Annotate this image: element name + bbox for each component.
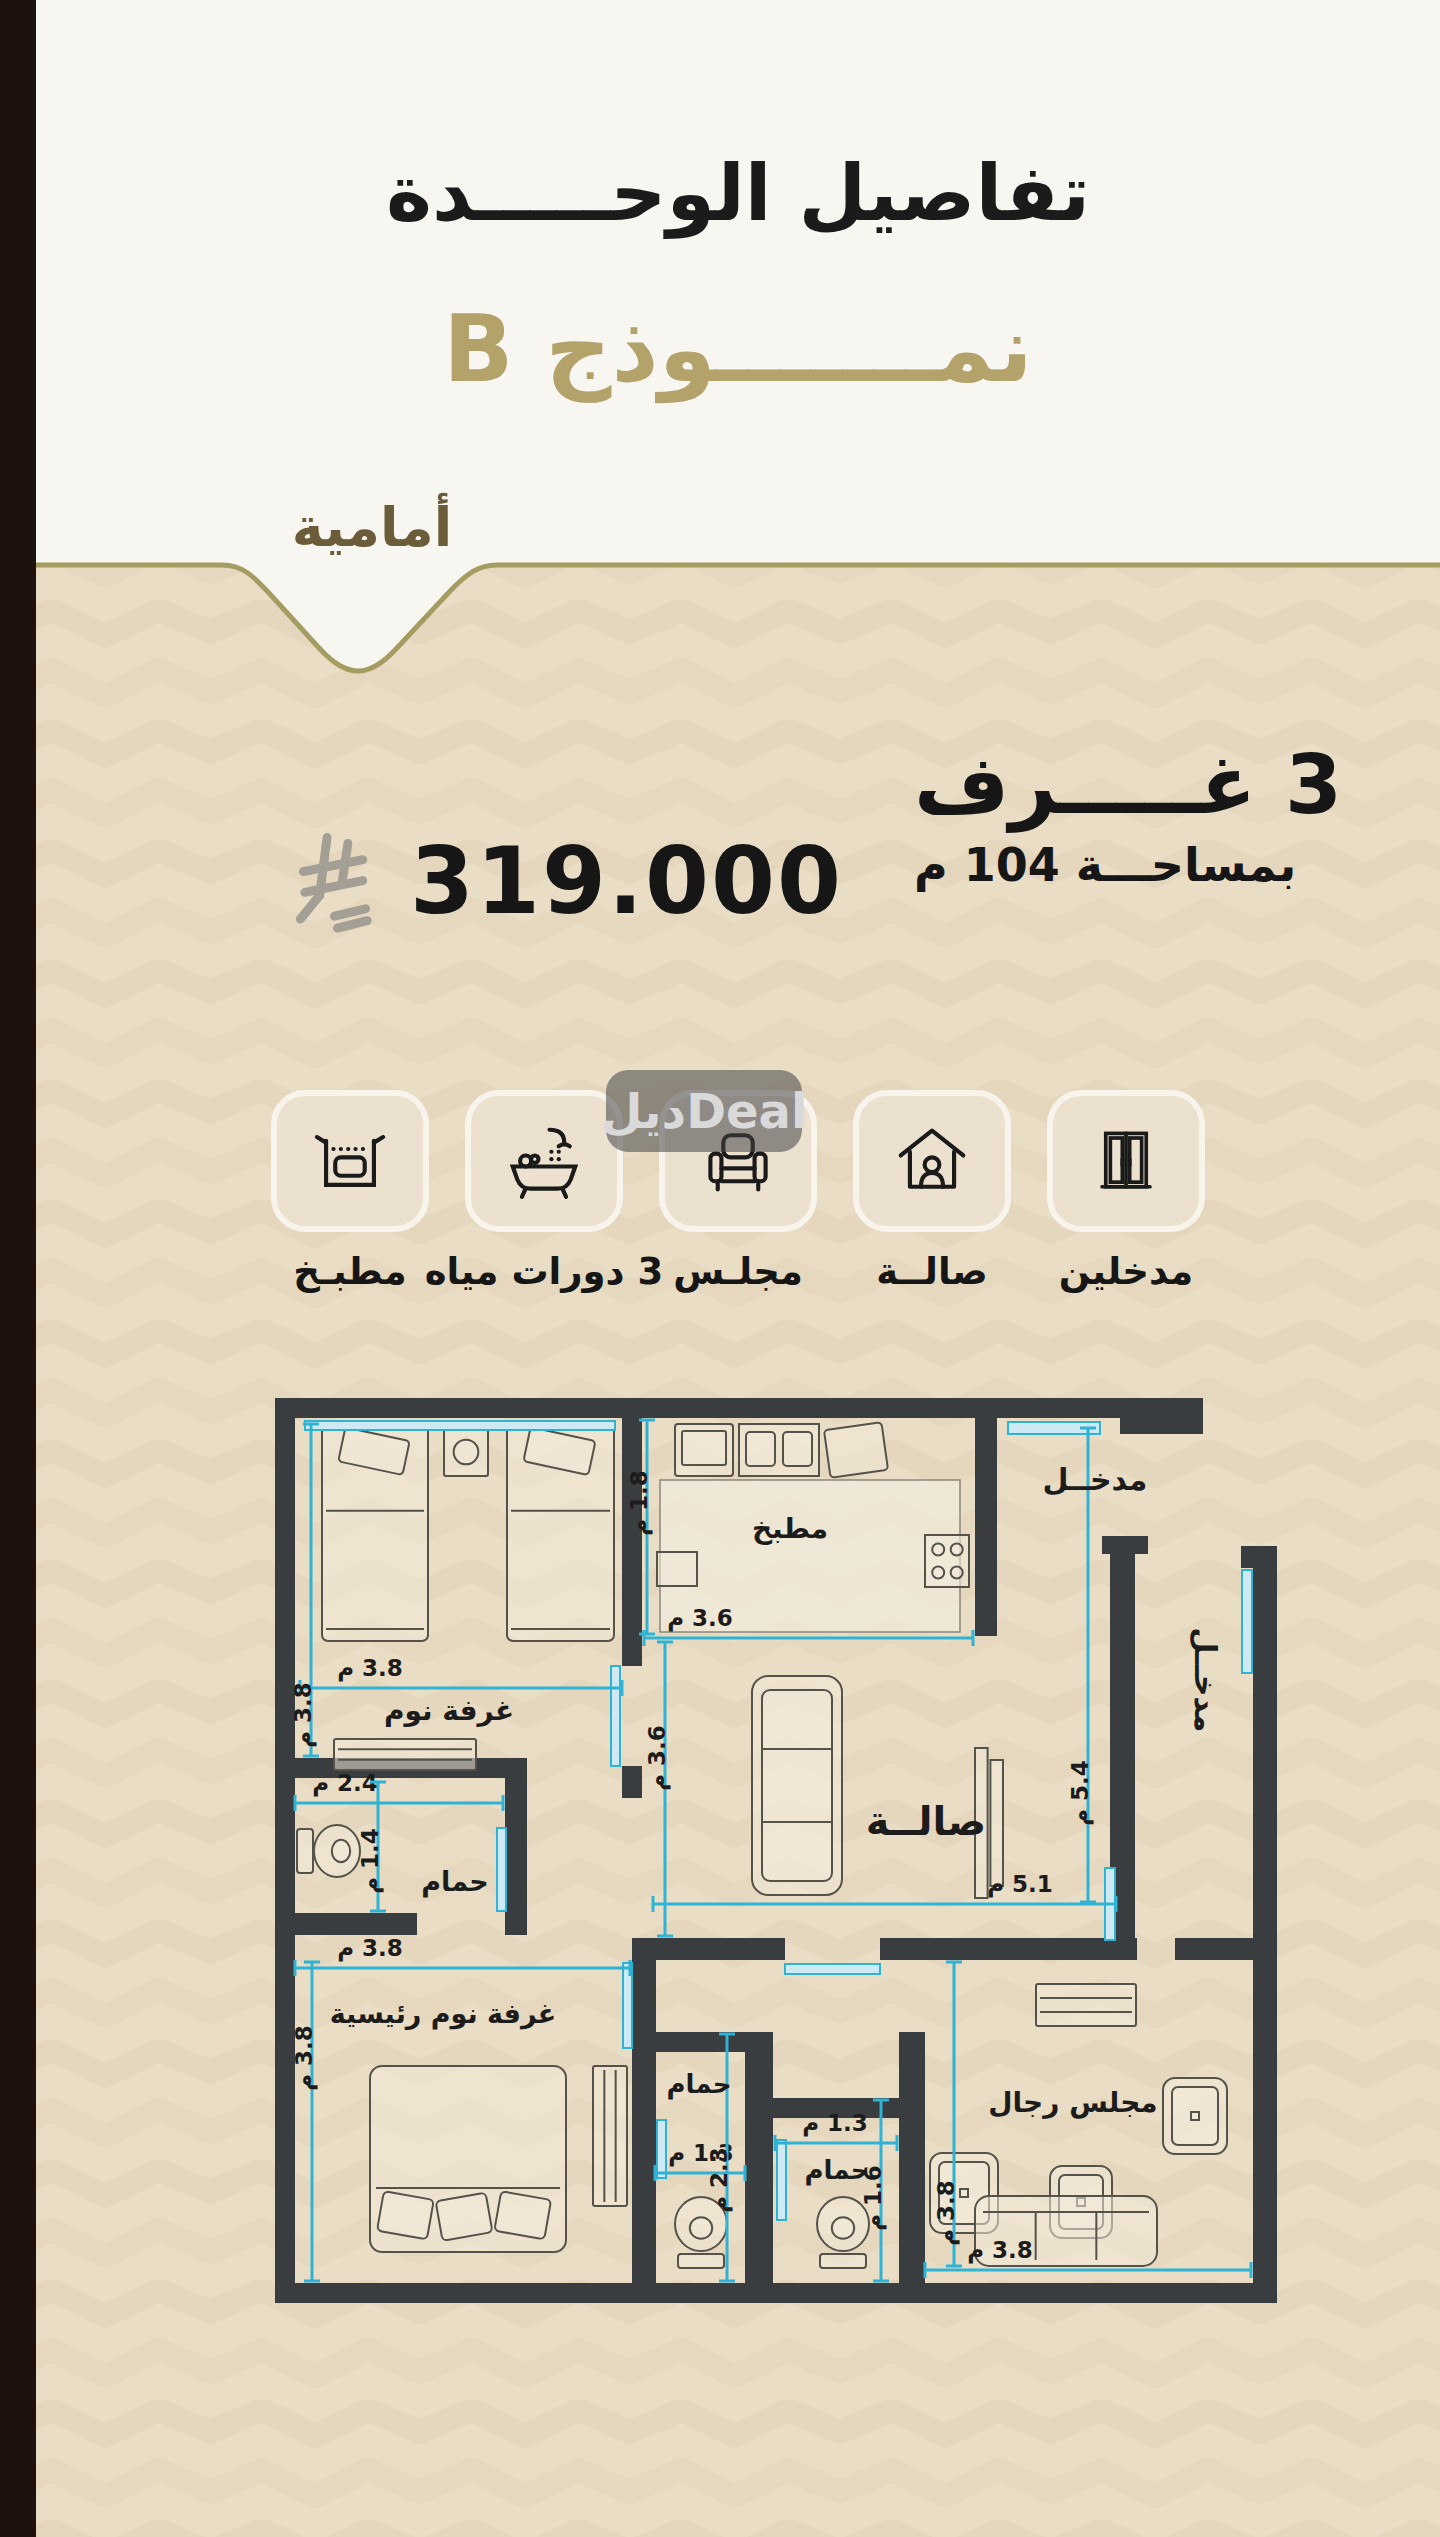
- svg-text:مجلس رجال: مجلس رجال: [988, 2086, 1157, 2119]
- svg-text:3.6 م: 3.6 م: [667, 1605, 733, 1632]
- svg-text:3.6 م: 3.6 م: [644, 1725, 671, 1791]
- svg-text:غرفة نوم: غرفة نوم: [384, 1694, 514, 1727]
- flyer-page: تفاصيل الوحـــــدة نمـــــــوذج B أمامية…: [0, 0, 1440, 2537]
- svg-text:3.8 م: 3.8 م: [337, 1935, 403, 1962]
- double-door-icon: [1080, 1115, 1172, 1207]
- specs-block: 3 غـــــرف بمساحـــة 104 م: [914, 742, 1342, 892]
- feature-label: مطبـخ: [293, 1250, 406, 1293]
- svg-text:5.4 م: 5.4 م: [1067, 1760, 1094, 1826]
- svg-text:مدخــل: مدخــل: [1043, 1462, 1148, 1497]
- feature-card: [465, 1090, 623, 1232]
- price-block: 319.000: [288, 828, 843, 935]
- svg-text:1.3 م: 1.3 م: [802, 2110, 868, 2137]
- side-accent-bar: [0, 0, 36, 2537]
- floor-plan-svg: 3.8 م3.8 م1.8 م3.6 م3.6 م5.1 م5.4 م2.4 م…: [275, 1398, 1285, 2308]
- svg-text:1.4 م: 1.4 م: [357, 1828, 384, 1894]
- page-title: تفاصيل الوحـــــدة: [36, 148, 1440, 238]
- svg-text:مدخــل: مدخــل: [1188, 1628, 1223, 1733]
- house-person-icon: [886, 1115, 978, 1207]
- svg-text:3.8 م: 3.8 م: [967, 2237, 1033, 2264]
- svg-text:1.8 م: 1.8 م: [626, 1470, 653, 1536]
- price-value: 319.000: [410, 828, 843, 935]
- model-title: نمـــــــوذج B: [36, 296, 1440, 403]
- feature-card: [271, 1090, 429, 1232]
- feature-hall: صالــة: [853, 1090, 1011, 1293]
- feature-label: 3 دورات مياه: [425, 1250, 663, 1293]
- bathtub-shower-icon: [498, 1115, 590, 1207]
- unit-area: بمساحـــة 104 م: [914, 838, 1342, 892]
- floor-plan: 3.8 م3.8 م1.8 م3.6 م3.6 م5.1 م5.4 م2.4 م…: [275, 1398, 1285, 2308]
- feature-entrances: مدخلين: [1047, 1090, 1205, 1293]
- feature-label: مدخلين: [1059, 1250, 1193, 1293]
- feature-kitchen: مطبـخ: [271, 1090, 429, 1293]
- svg-text:5.1 م: 5.1 م: [987, 1871, 1053, 1898]
- svg-text:حمام: حمام: [805, 2155, 870, 2186]
- svg-text:صالــة: صالــة: [866, 1798, 986, 1844]
- watermark-badge: ديلDeal: [606, 1070, 802, 1152]
- svg-text:حمام: حمام: [667, 2069, 732, 2100]
- svg-text:غرفة نوم رئيسية: غرفة نوم رئيسية: [330, 1998, 557, 2030]
- feature-label: مجلـس: [673, 1250, 803, 1293]
- saudi-riyal-icon: [288, 830, 384, 934]
- feature-card: [1047, 1090, 1205, 1232]
- orientation-badge: أمامية: [252, 496, 492, 559]
- svg-text:3.8 م: 3.8 م: [291, 2025, 318, 2091]
- svg-text:2.4 م: 2.4 م: [312, 1770, 378, 1797]
- svg-text:مطبخ: مطبخ: [752, 1512, 828, 1545]
- svg-text:حمام: حمام: [421, 1866, 489, 1898]
- feature-card: [853, 1090, 1011, 1232]
- feature-bathrooms: 3 دورات مياه: [465, 1090, 623, 1293]
- rooms-count: 3 غـــــرف: [914, 742, 1342, 828]
- svg-text:3.8 م: 3.8 م: [337, 1655, 403, 1682]
- feature-label: صالــة: [876, 1250, 987, 1293]
- svg-text:2.3 م: 2.3 م: [706, 2147, 733, 2213]
- svg-text:3.8 م: 3.8 م: [290, 1682, 317, 1748]
- svg-text:3.8 م: 3.8 م: [933, 2180, 960, 2246]
- kitchen-oven-icon: [304, 1115, 396, 1207]
